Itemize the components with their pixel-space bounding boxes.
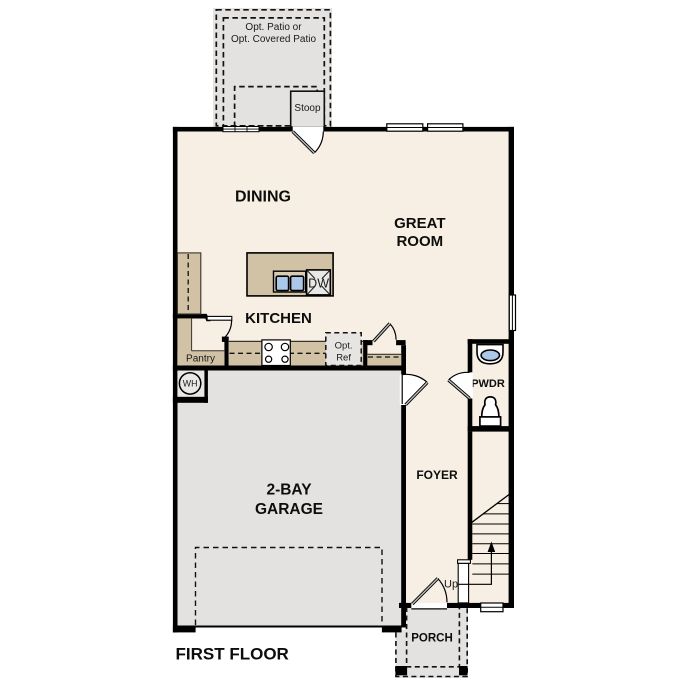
svg-text:DW: DW	[308, 277, 329, 291]
svg-text:Pantry: Pantry	[186, 354, 215, 365]
svg-text:GARAGE: GARAGE	[255, 501, 323, 518]
svg-text:FIRST FLOOR: FIRST FLOOR	[176, 645, 289, 664]
svg-text:Opt. Patio or: Opt. Patio or	[245, 22, 302, 33]
svg-text:FOYER: FOYER	[416, 468, 458, 482]
svg-text:GREAT: GREAT	[394, 215, 445, 232]
svg-text:KITCHEN: KITCHEN	[245, 310, 312, 327]
svg-text:Ref: Ref	[336, 353, 351, 364]
svg-text:2-BAY: 2-BAY	[266, 482, 312, 499]
svg-text:WH: WH	[183, 379, 198, 389]
svg-text:PORCH: PORCH	[411, 633, 453, 645]
svg-text:PWDR: PWDR	[471, 378, 505, 390]
svg-text:Stoop: Stoop	[294, 103, 321, 114]
svg-text:Opt.: Opt.	[335, 341, 353, 352]
svg-text:DINING: DINING	[235, 189, 291, 206]
svg-text:Opt. Covered Patio: Opt. Covered Patio	[231, 34, 316, 45]
svg-text:ROOM: ROOM	[396, 233, 443, 250]
svg-text:Up: Up	[444, 579, 458, 591]
